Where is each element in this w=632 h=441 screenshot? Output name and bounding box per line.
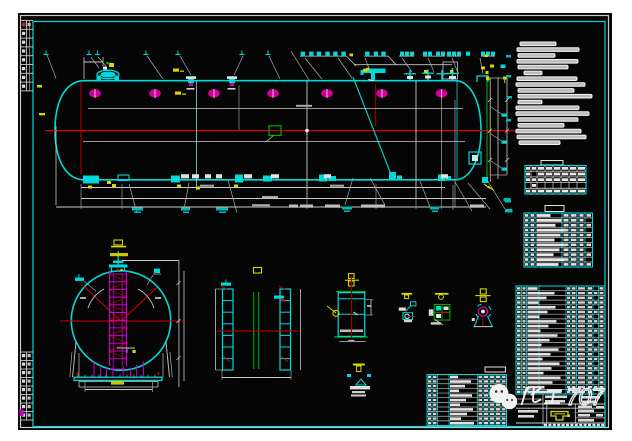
svg-text:707: 707 — [566, 384, 606, 411]
